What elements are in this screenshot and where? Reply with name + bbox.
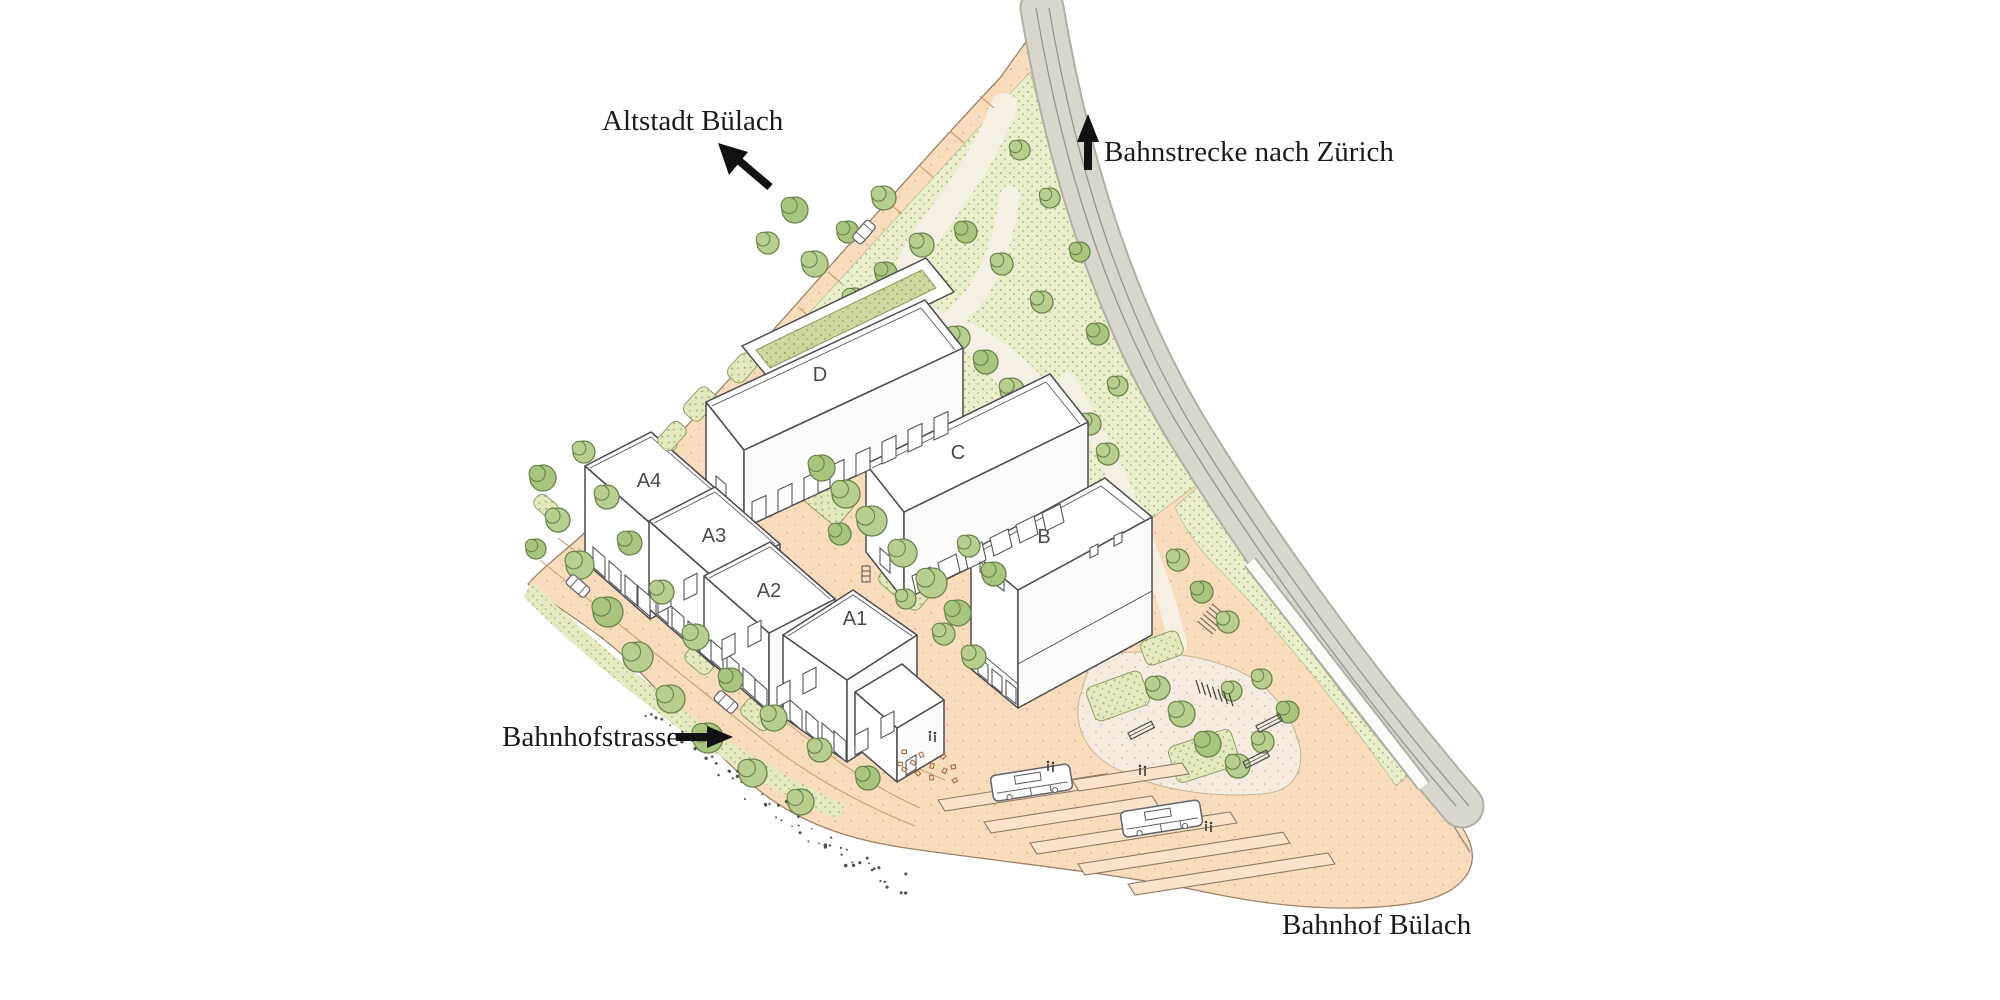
tree-icon bbox=[718, 668, 743, 692]
tree-icon bbox=[888, 539, 917, 567]
gravel-dot bbox=[851, 861, 853, 863]
gravel-dot bbox=[768, 803, 770, 805]
gravel-dot bbox=[852, 864, 855, 867]
tree-icon bbox=[807, 738, 832, 762]
tree-icon bbox=[592, 597, 623, 627]
tree-icon bbox=[981, 562, 1006, 586]
tree-icon bbox=[525, 539, 546, 559]
gravel-dot bbox=[818, 843, 820, 845]
gravel-dot bbox=[904, 891, 907, 894]
gravel-dot bbox=[844, 864, 848, 868]
building-label-a1: A1 bbox=[843, 608, 867, 630]
gravel-dot bbox=[885, 885, 888, 888]
tree-icon bbox=[1168, 701, 1195, 727]
tree-icon bbox=[916, 568, 947, 598]
gravel-dot bbox=[645, 715, 647, 717]
site-plan-canvas: D C B A4 bbox=[0, 0, 2000, 1000]
gravel-dot bbox=[829, 844, 831, 846]
gravel-dot bbox=[846, 849, 848, 851]
map-label-bahnstrecke: Bahnstrecke nach Zürich bbox=[1104, 136, 1394, 168]
tree-icon bbox=[1086, 323, 1109, 345]
gravel-dot bbox=[711, 755, 713, 757]
gravel-dot bbox=[761, 793, 763, 795]
tree-icon bbox=[961, 645, 986, 669]
tree-icon bbox=[787, 789, 814, 815]
tree-icon bbox=[1107, 376, 1128, 396]
tree-icon bbox=[738, 759, 767, 787]
tree-icon bbox=[594, 485, 619, 509]
tree-icon bbox=[545, 508, 570, 532]
tree-icon bbox=[682, 624, 709, 650]
gravel-dot bbox=[775, 816, 777, 818]
map-label-bahnhofstrasse: Bahnhofstrasse bbox=[502, 721, 679, 753]
tree-icon bbox=[1030, 291, 1053, 313]
tree-icon bbox=[1069, 242, 1090, 262]
gravel-dot bbox=[824, 845, 827, 848]
tree-icon bbox=[801, 251, 828, 277]
gravel-dot bbox=[744, 798, 746, 800]
building-label-d: D bbox=[813, 364, 827, 386]
tree-icon bbox=[895, 589, 916, 609]
gravel-dot bbox=[904, 872, 907, 875]
tree-icon bbox=[973, 350, 998, 374]
tree-icon bbox=[1251, 669, 1272, 689]
gravel-dot bbox=[858, 861, 861, 864]
tree-icon bbox=[944, 600, 971, 626]
tree-icon bbox=[1221, 681, 1242, 701]
gravel-dot bbox=[765, 805, 767, 807]
gravel-dot bbox=[650, 713, 653, 716]
gravel-dot bbox=[866, 857, 869, 860]
tree-icon bbox=[760, 705, 787, 731]
gravel-dot bbox=[830, 836, 832, 838]
gravel-dot bbox=[840, 847, 842, 849]
tree-icon bbox=[1009, 140, 1030, 160]
arrow-up-left-icon bbox=[718, 143, 770, 187]
tree-icon bbox=[529, 465, 556, 491]
tree-icon bbox=[617, 531, 642, 555]
tree-icon bbox=[781, 197, 808, 223]
tree-icon bbox=[957, 535, 980, 557]
tree-icon bbox=[831, 480, 860, 508]
gravel-dot bbox=[877, 866, 880, 869]
map-label-bahnhof: Bahnhof Bülach bbox=[1282, 909, 1472, 941]
tree-icon bbox=[1096, 443, 1119, 465]
gravel-dot bbox=[873, 867, 876, 870]
tree-icon bbox=[828, 523, 851, 545]
tree-icon bbox=[855, 766, 880, 790]
tree-icon bbox=[1190, 581, 1213, 603]
tree-icon bbox=[1276, 701, 1299, 723]
tree-icon bbox=[1216, 611, 1239, 633]
tree-icon bbox=[1166, 549, 1189, 571]
tree-icon bbox=[1225, 754, 1250, 778]
gravel-dot bbox=[715, 762, 718, 765]
tree-icon bbox=[1039, 188, 1060, 208]
gravel-dot bbox=[798, 824, 800, 826]
gravel-dot bbox=[811, 828, 813, 830]
building-label-c: C bbox=[951, 442, 965, 464]
tree-icon bbox=[932, 623, 955, 645]
tree-icon bbox=[1145, 676, 1170, 700]
gravel-dot bbox=[704, 757, 707, 760]
map-label-altstadt: Altstadt Bülach bbox=[602, 105, 784, 137]
gravel-dot bbox=[732, 777, 734, 779]
site-plan-illustration: D C B A4 bbox=[0, 0, 2000, 1000]
gravel-dot bbox=[777, 804, 780, 807]
gravel-dot bbox=[797, 815, 800, 818]
tree-icon bbox=[1194, 731, 1221, 757]
tree-icon bbox=[565, 551, 594, 579]
tree-icon bbox=[756, 232, 779, 254]
tree-icon bbox=[572, 441, 595, 463]
gravel-dot bbox=[791, 825, 793, 827]
gravel-dot bbox=[807, 841, 809, 843]
tree-icon bbox=[656, 685, 685, 713]
tree-icon bbox=[649, 580, 674, 604]
gravel-dot bbox=[654, 716, 657, 719]
gravel-dot bbox=[900, 891, 903, 894]
tree-icon bbox=[622, 642, 653, 672]
tree-icon bbox=[954, 221, 977, 243]
tree-icon bbox=[856, 506, 887, 536]
gravel-dot bbox=[799, 831, 802, 834]
gravel-dot bbox=[884, 881, 886, 883]
gravel-dot bbox=[868, 862, 870, 864]
building-label-a3: A3 bbox=[702, 525, 726, 547]
tree-icon bbox=[871, 186, 896, 210]
tree-icon bbox=[1251, 731, 1274, 753]
gravel-dot bbox=[879, 880, 881, 882]
building-label-a4: A4 bbox=[637, 470, 661, 492]
gravel-dot bbox=[727, 769, 730, 772]
gravel-dot bbox=[736, 775, 739, 778]
gravel-dot bbox=[780, 819, 782, 821]
tree-icon bbox=[808, 455, 835, 481]
gravel-dot bbox=[840, 853, 842, 855]
tree-icon bbox=[990, 253, 1013, 275]
gravel-dot bbox=[717, 774, 720, 777]
building-label-a2: A2 bbox=[757, 580, 781, 602]
tree-icon bbox=[909, 233, 934, 257]
